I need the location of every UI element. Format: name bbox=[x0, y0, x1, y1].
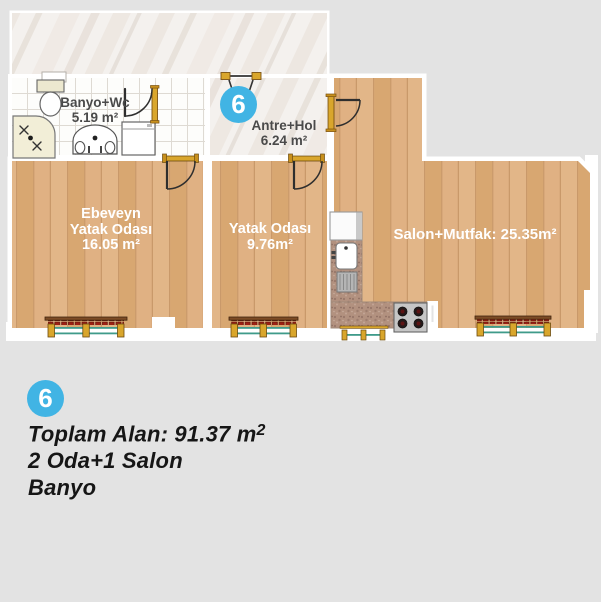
washing-machine bbox=[122, 122, 155, 155]
floor-plan: Banyo+Wc 5.19 m² 6 Antre+Hol 6.24 m² Ebe… bbox=[0, 0, 601, 602]
balcony-floor bbox=[12, 13, 327, 77]
radiator-bedroom bbox=[229, 317, 298, 337]
radiator-kitchen bbox=[340, 326, 388, 340]
radiator-living-room bbox=[475, 316, 551, 336]
fridge bbox=[330, 212, 362, 240]
toilet bbox=[37, 80, 64, 116]
bedroom-floor bbox=[212, 161, 327, 328]
bathroom-sink bbox=[73, 125, 117, 154]
stove bbox=[394, 303, 427, 332]
dishwasher bbox=[337, 272, 357, 292]
summary-total-area-value: Toplam Alan: 91.37 m bbox=[28, 421, 257, 446]
summary-total-area-sup: 2 bbox=[257, 422, 266, 439]
summary-text: Toplam Alan: 91.37 m2 2 Oda+1 Salon Bany… bbox=[28, 415, 266, 501]
corner-shower bbox=[13, 116, 55, 158]
unit-number-badge-hall: 6 bbox=[220, 86, 257, 123]
summary-total-area: Toplam Alan: 91.37 m2 bbox=[28, 415, 266, 447]
floor-plan-graphics bbox=[0, 0, 601, 602]
living-room-kitchen-floor bbox=[334, 78, 590, 328]
master-bedroom-floor bbox=[12, 161, 203, 328]
summary-rooms: 2 Oda+1 Salon bbox=[28, 447, 266, 474]
summary-bath: Banyo bbox=[28, 474, 266, 501]
unit-number-badge-summary: 6 bbox=[27, 380, 64, 417]
radiator-master-bedroom bbox=[45, 317, 127, 337]
